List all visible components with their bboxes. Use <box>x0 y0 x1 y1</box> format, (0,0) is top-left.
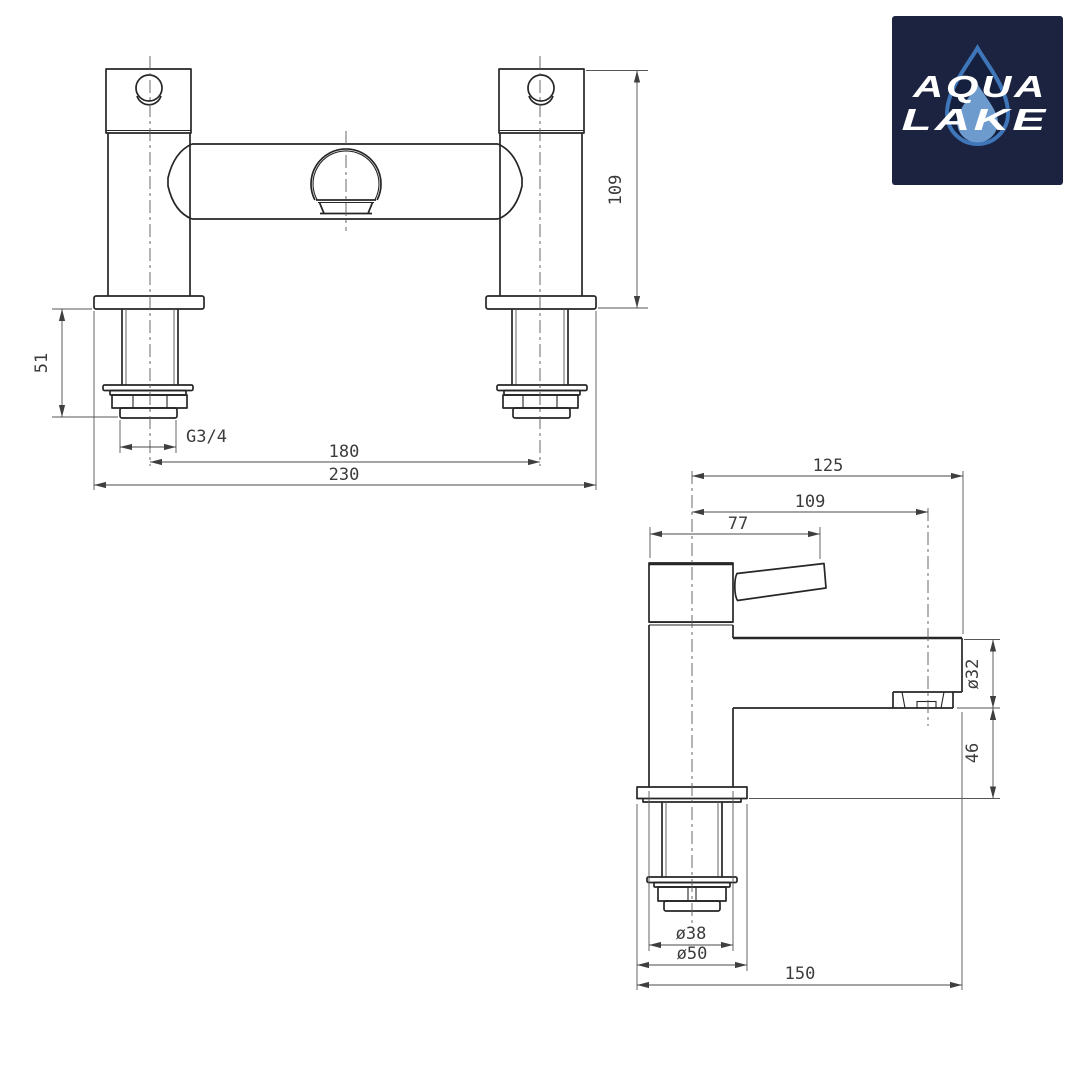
side-handle-joint-line <box>649 623 733 626</box>
bath-tap-technical-drawing: 109 51 G3/4 180 230 <box>0 0 1080 1080</box>
dim-front-height-label: 109 <box>606 175 626 206</box>
beam-edges <box>192 144 498 219</box>
dim-aerator-reach-label: 109 <box>795 492 826 512</box>
aerator-bevels <box>902 692 944 708</box>
front-view: 109 51 G3/4 180 230 <box>32 56 648 490</box>
side-body-edges <box>649 625 733 787</box>
extension-lines <box>94 311 596 490</box>
left-handle-button <box>136 75 162 101</box>
right-pillar-body <box>500 133 582 296</box>
dimension-front-height: 109 <box>586 71 648 309</box>
dim-projection-label: 125 <box>813 456 844 476</box>
dim-depth-label: 150 <box>785 964 816 984</box>
right-pillar <box>486 69 596 418</box>
dimension-aerator-reach: 109 <box>692 492 928 512</box>
handle-lever <box>735 564 826 601</box>
dim-overall-width-label: 230 <box>329 465 360 485</box>
dimension-thread: G3/4 <box>120 420 227 453</box>
dimension-handle-reach: 77 <box>650 514 820 559</box>
extension-lines <box>120 420 176 453</box>
dim-thread-label: G3/4 <box>186 427 227 447</box>
right-inlet-tail <box>513 408 570 418</box>
dimension-spout-dia: ø32 <box>957 640 1000 709</box>
side-handle-body <box>649 563 733 622</box>
technical-drawing-page: 109 51 G3/4 180 230 <box>0 0 1080 1080</box>
spout-outline <box>733 638 962 708</box>
left-base-flange <box>94 296 204 309</box>
aerator-notch <box>917 702 936 709</box>
dim-under-deck-label: 51 <box>32 353 52 373</box>
side-view: 125 109 77 ø32 46 <box>637 456 1000 990</box>
beam-left-chamfer <box>168 144 192 219</box>
side-handle-head <box>649 563 826 625</box>
right-backnut <box>503 395 578 408</box>
left-inlet-tail <box>120 408 177 418</box>
spout <box>733 638 962 708</box>
left-handle-joint-line <box>106 131 191 134</box>
right-handle-button <box>528 75 554 101</box>
front-centerlines <box>150 56 540 466</box>
left-pillar <box>94 69 204 418</box>
beam-right-chamfer <box>498 144 522 219</box>
dimension-under-deck: 51 <box>32 309 118 417</box>
logo-text-line1: AQUA <box>912 69 1047 104</box>
left-backnut <box>112 395 187 408</box>
dim-flange-dia-label: ø50 <box>677 944 708 964</box>
left-pillar-body <box>108 133 190 296</box>
dim-handle-reach-label: 77 <box>728 514 748 534</box>
dim-spout-dia-label: ø32 <box>963 659 983 690</box>
dim-body-dia-label: ø38 <box>676 924 707 944</box>
dimension-overall-width: 230 <box>94 311 596 490</box>
body-beam <box>168 144 522 219</box>
right-handle-joint-line <box>499 131 584 134</box>
side-pillar-body <box>649 625 733 787</box>
logo-text-line2: LAKE <box>902 102 1049 137</box>
side-dimensions: 125 109 77 ø32 46 <box>637 456 1000 990</box>
dim-hole-centres-label: 180 <box>329 442 360 462</box>
dim-spout-clearance-label: 46 <box>963 743 983 763</box>
right-base-flange <box>486 296 596 309</box>
logo: AQUA LAKE <box>892 16 1063 185</box>
